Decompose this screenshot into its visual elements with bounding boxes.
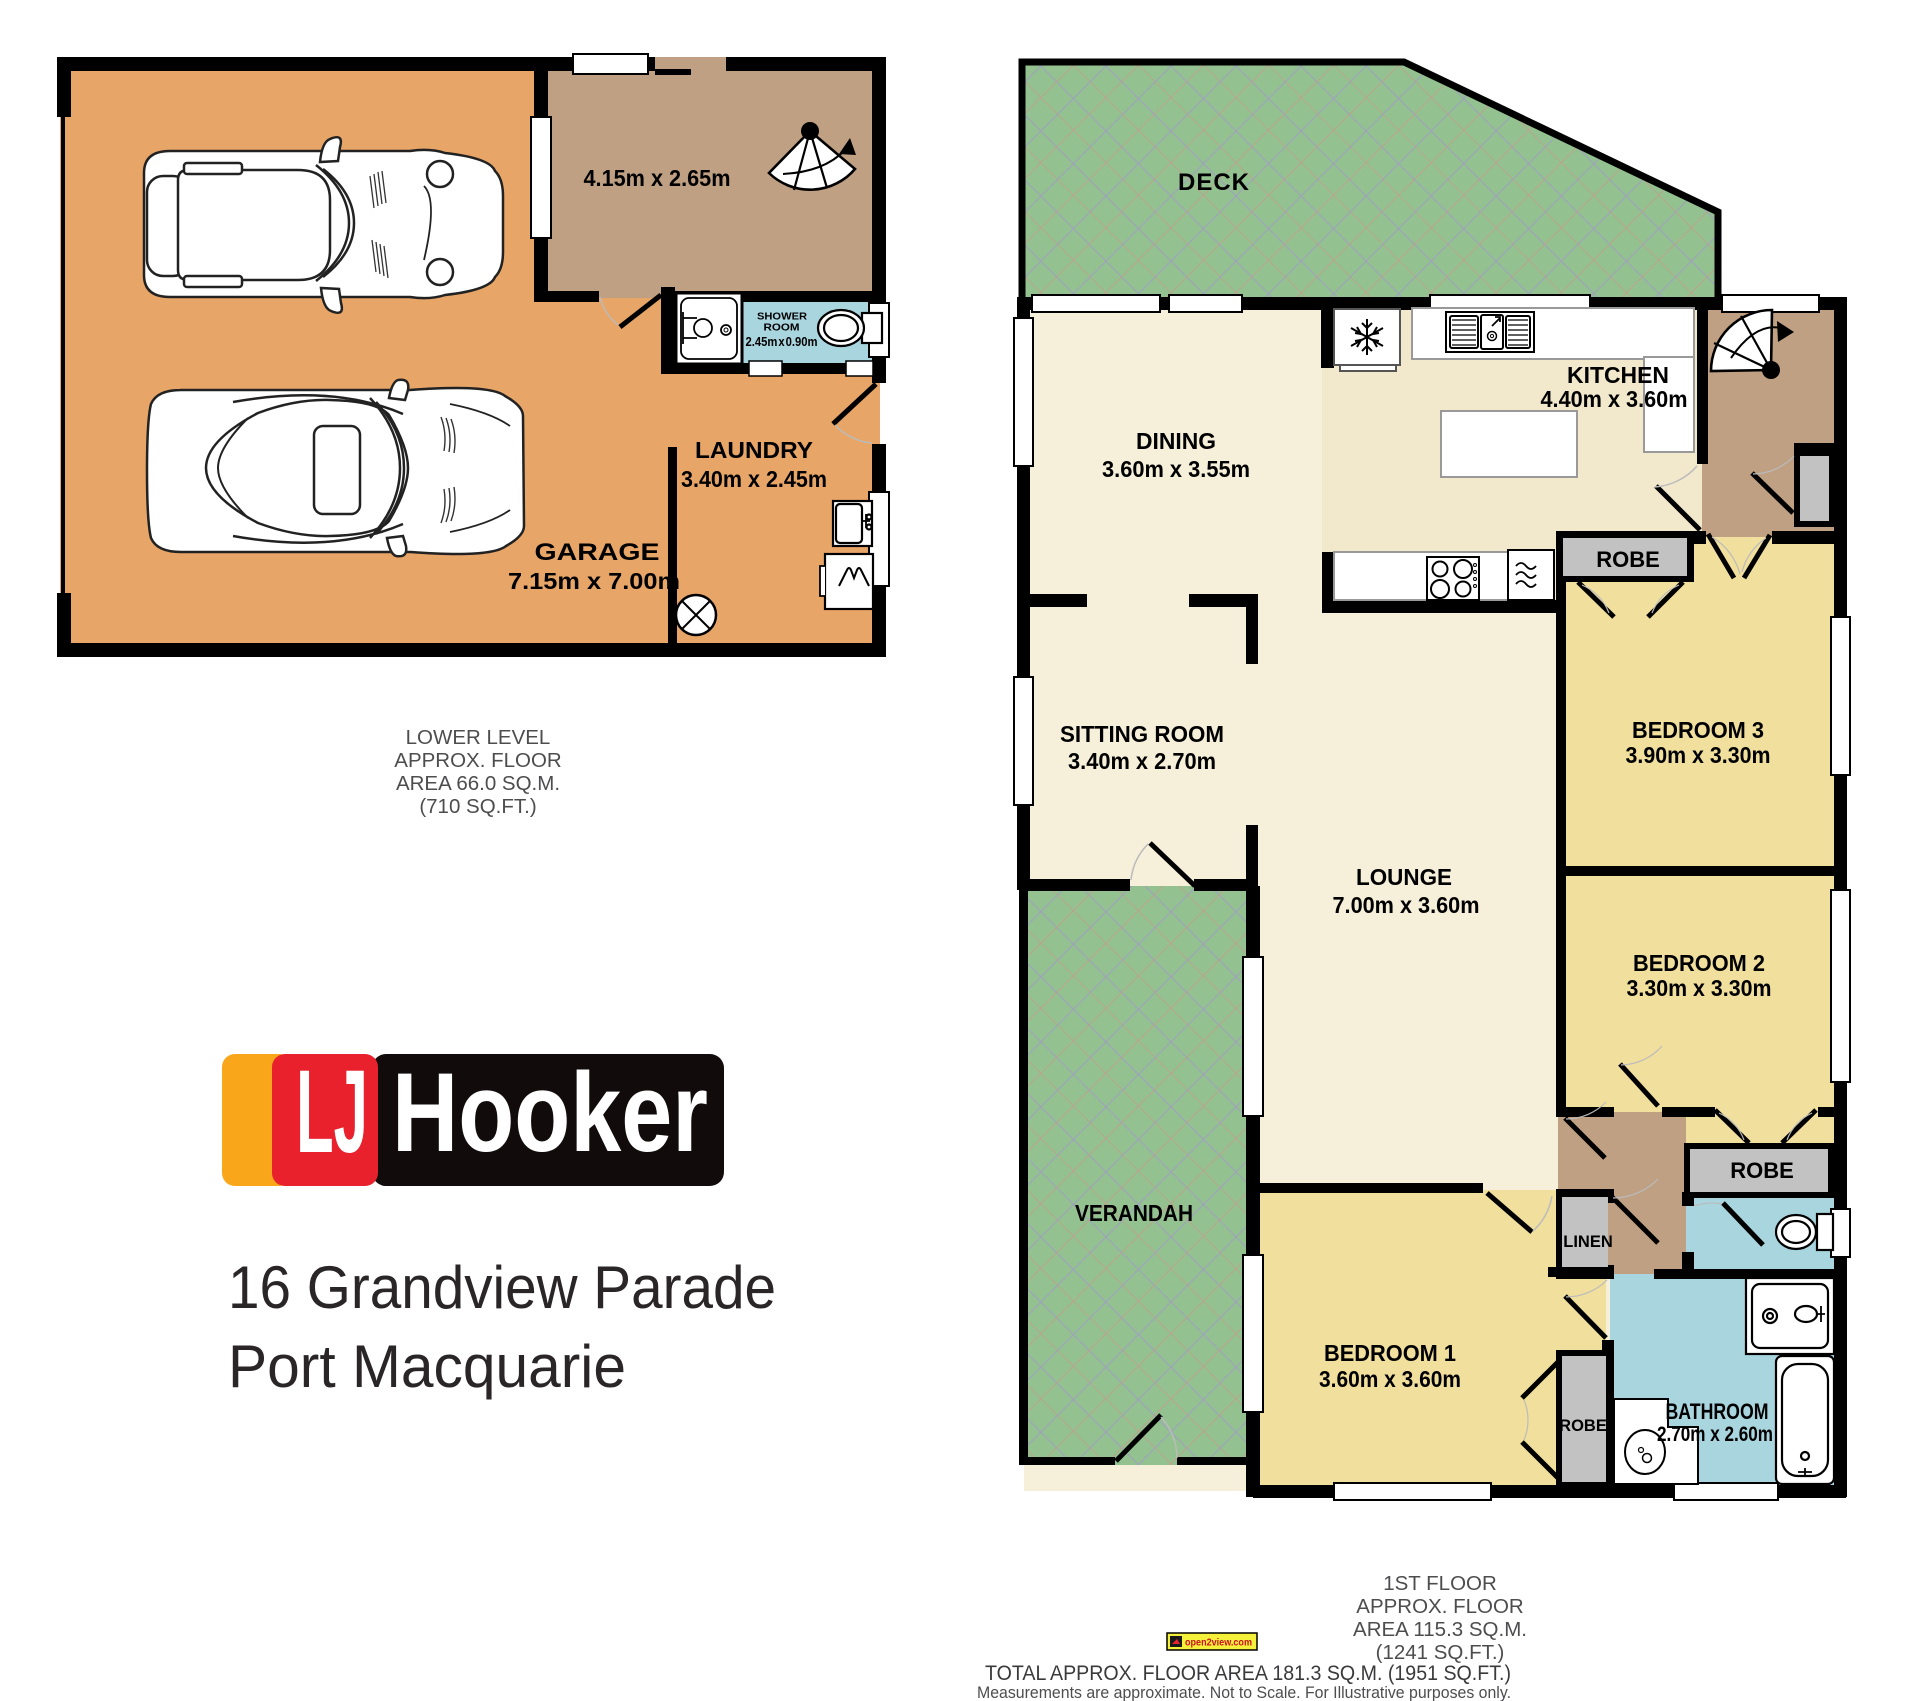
- svg-text:BEDROOM 1: BEDROOM 1: [1324, 1340, 1456, 1366]
- svg-text:3.90m x 3.30m: 3.90m x 3.30m: [1626, 742, 1771, 768]
- svg-text:VERANDAH: VERANDAH: [1075, 1200, 1193, 1226]
- svg-text:APPROX. FLOOR: APPROX. FLOOR: [394, 749, 561, 772]
- svg-text:3.40m x 2.45m: 3.40m x 2.45m: [681, 466, 827, 492]
- svg-text:BEDROOM 3: BEDROOM 3: [1632, 717, 1764, 743]
- svg-text:AREA 115.3 SQ.M.: AREA 115.3 SQ.M.: [1353, 1618, 1527, 1641]
- svg-text:ROBE: ROBE: [1559, 1417, 1607, 1435]
- svg-text:4.40m x 3.60m: 4.40m x 3.60m: [1541, 386, 1688, 412]
- svg-text:2.70m x 2.60m: 2.70m x 2.60m: [1657, 1423, 1773, 1446]
- svg-text:LAUNDRY: LAUNDRY: [695, 437, 813, 463]
- svg-text:LINEN: LINEN: [1563, 1233, 1613, 1251]
- svg-text:BATHROOM: BATHROOM: [1666, 1399, 1769, 1424]
- svg-text:DECK: DECK: [1178, 169, 1250, 196]
- svg-text:DINING: DINING: [1136, 428, 1216, 454]
- svg-text:7.15m x 7.00m: 7.15m x 7.00m: [508, 568, 680, 594]
- svg-text:BEDROOM 2: BEDROOM 2: [1633, 950, 1765, 976]
- svg-text:LOUNGE: LOUNGE: [1356, 864, 1452, 890]
- svg-text:LOWER LEVEL: LOWER LEVEL: [406, 726, 551, 749]
- svg-text:7.00m x 3.60m: 7.00m x 3.60m: [1333, 892, 1480, 918]
- svg-text:4.15m x 2.65m: 4.15m x 2.65m: [584, 165, 731, 191]
- svg-text:open2view.com: open2view.com: [1185, 1637, 1252, 1649]
- svg-text:(710 SQ.FT.): (710 SQ.FT.): [419, 795, 536, 818]
- svg-text:3.60m x 3.60m: 3.60m x 3.60m: [1319, 1366, 1461, 1392]
- svg-text:TOTAL APPROX. FLOOR AREA 181.3: TOTAL APPROX. FLOOR AREA 181.3 SQ.M. (19…: [985, 1661, 1511, 1685]
- svg-text:16 Grandview Parade: 16 Grandview Parade: [228, 1254, 776, 1321]
- svg-text:2.45m x 0.90m: 2.45m x 0.90m: [746, 335, 818, 349]
- svg-text:LJ: LJ: [296, 1046, 368, 1178]
- svg-text:3.40m x 2.70m: 3.40m x 2.70m: [1068, 748, 1216, 774]
- svg-text:Measurements are approximate.: Measurements are approximate. Not to Sca…: [977, 1683, 1511, 1701]
- svg-text:GARAGE: GARAGE: [535, 539, 660, 566]
- svg-text:APPROX. FLOOR: APPROX. FLOOR: [1356, 1595, 1523, 1618]
- svg-text:ROOM: ROOM: [764, 322, 800, 334]
- svg-text:SITTING ROOM: SITTING ROOM: [1060, 721, 1224, 747]
- svg-text:3.60m x 3.55m: 3.60m x 3.55m: [1102, 456, 1250, 482]
- svg-text:1ST FLOOR: 1ST FLOOR: [1383, 1572, 1497, 1595]
- svg-text:ROBE: ROBE: [1730, 1158, 1794, 1183]
- svg-text:ROBE: ROBE: [1596, 547, 1660, 572]
- svg-text:Hooker: Hooker: [392, 1050, 708, 1175]
- svg-text:Port Macquarie: Port Macquarie: [228, 1333, 626, 1400]
- svg-text:3.30m x 3.30m: 3.30m x 3.30m: [1627, 975, 1772, 1001]
- svg-text:AREA 66.0 SQ.M.: AREA 66.0 SQ.M.: [396, 772, 560, 795]
- svg-text:KITCHEN: KITCHEN: [1567, 362, 1669, 388]
